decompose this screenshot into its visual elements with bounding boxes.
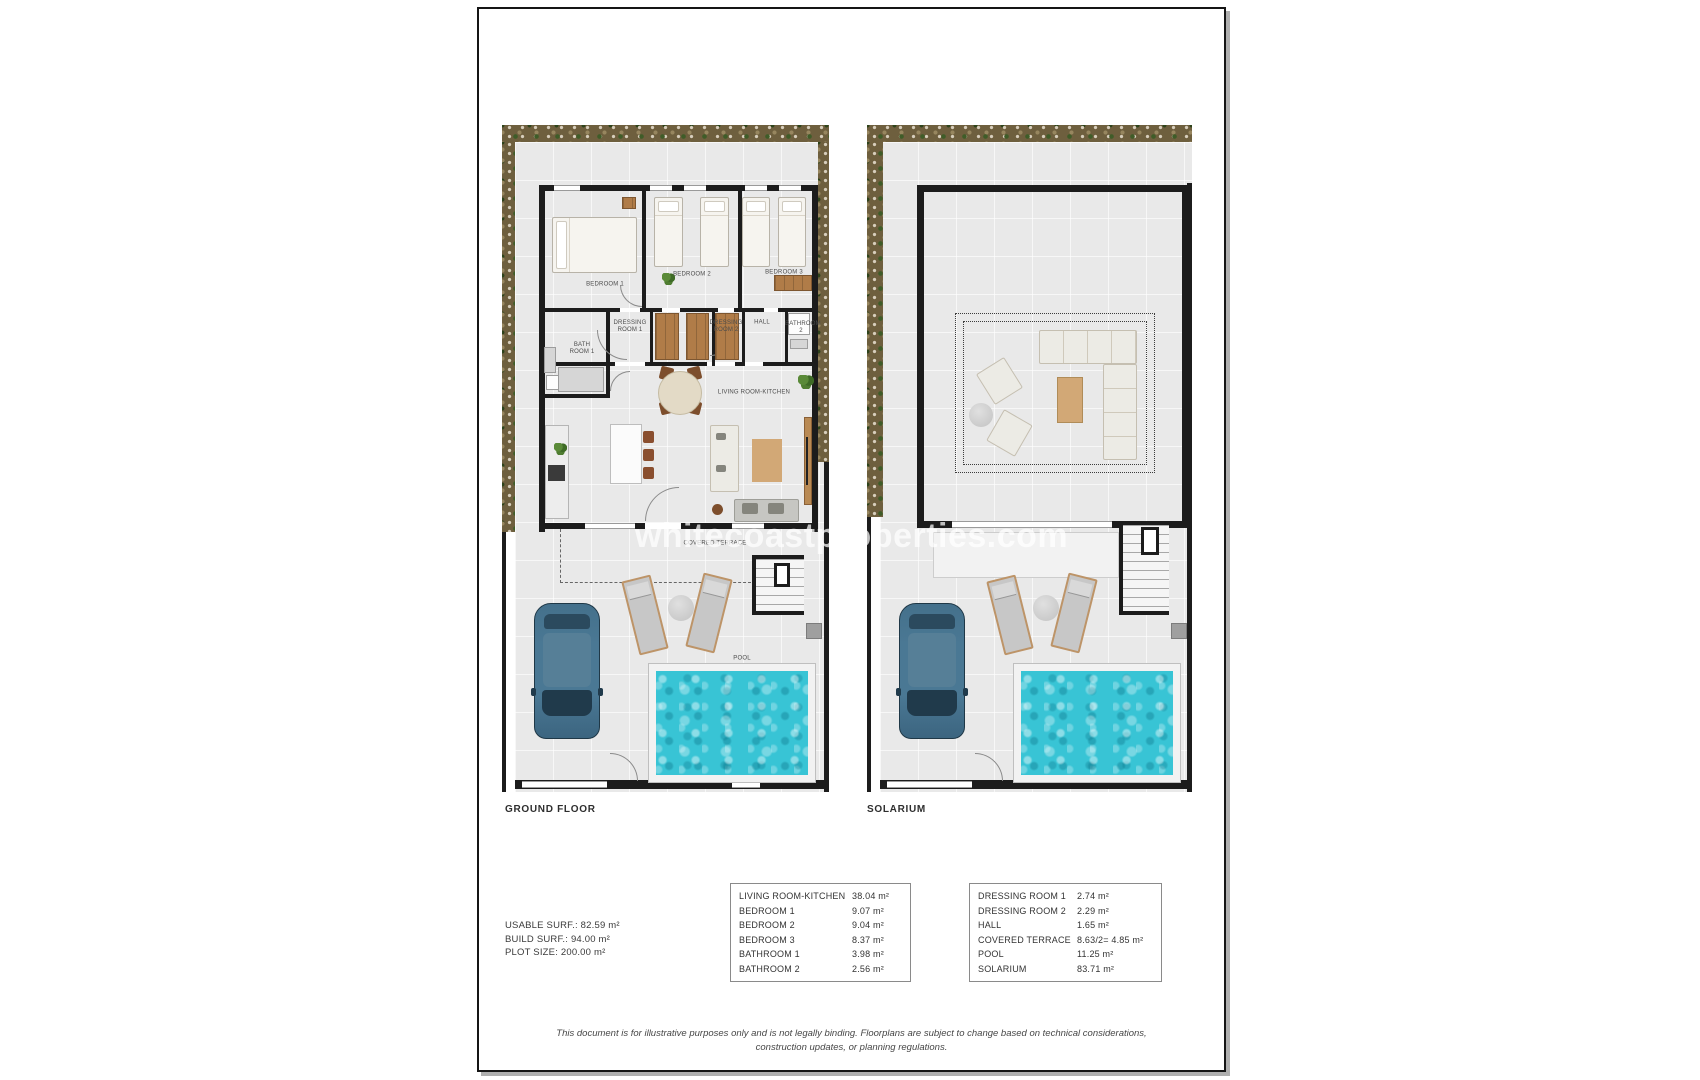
table-row: BEDROOM 38.37 m² <box>739 933 902 947</box>
bar-stool <box>643 431 654 443</box>
car-rear-window <box>909 614 955 629</box>
table-row: HALL1.65 m² <box>978 918 1153 932</box>
table-row: BEDROOM 19.07 m² <box>739 904 902 918</box>
room-name: SOLARIUM <box>978 962 1077 976</box>
room-label-bedroom3: BEDROOM 3 <box>765 270 803 277</box>
shower <box>558 367 604 392</box>
gate <box>522 781 607 788</box>
room-area: 8.37 m² <box>852 933 902 947</box>
room-label-bedroom1: BEDROOM 1 <box>586 282 624 289</box>
garden-strip-left <box>867 142 883 517</box>
room-area: 2.29 m² <box>1077 904 1153 918</box>
boundary-wall <box>824 462 829 792</box>
build-surface: BUILD SURF.: 94.00 m² <box>505 933 620 947</box>
room-label-bath2: BATHROOM 2 <box>785 321 817 335</box>
interior-wall <box>539 394 610 398</box>
solarium-wall <box>1182 185 1189 528</box>
wardrobe <box>774 275 812 291</box>
usable-surface: USABLE SURF.: 82.59 m² <box>505 919 620 933</box>
pool-water <box>1021 671 1173 775</box>
pool-water <box>656 671 808 775</box>
sink <box>790 339 808 349</box>
kitchen-island <box>610 424 642 484</box>
side-table <box>969 403 993 427</box>
utility-box <box>806 623 822 639</box>
plant-icon <box>554 443 567 455</box>
garden-strip-top <box>867 125 1192 142</box>
stair-wall <box>752 611 804 615</box>
disclaimer: This document is for illustrative purpos… <box>479 1027 1224 1055</box>
room-label-living: LIVING ROOM-KITCHEN <box>718 390 790 397</box>
l-sofa-vertical <box>1103 364 1137 460</box>
bar-stool <box>643 449 654 461</box>
pool <box>648 663 816 783</box>
room-label-dress2: DRESSING ROOM 2 <box>708 320 744 334</box>
car-mirror <box>896 688 901 696</box>
room-name: BEDROOM 2 <box>739 918 852 932</box>
patio-table <box>668 595 694 621</box>
house-wall <box>812 185 818 532</box>
page: { "watermark": "whitecoastproperties.com… <box>0 0 1700 1080</box>
stove <box>548 465 565 481</box>
room-area: 3.98 m² <box>852 947 902 961</box>
door-opening <box>764 308 778 312</box>
room-name: BATHROOM 1 <box>739 947 852 961</box>
room-name: POOL <box>978 947 1077 961</box>
areas-table-2: DRESSING ROOM 12.74 m² DRESSING ROOM 22.… <box>969 883 1162 982</box>
table-row: DRESSING ROOM 12.74 m² <box>978 889 1153 903</box>
ground-floor-title: GROUND FLOOR <box>505 804 596 815</box>
watermark: whitecoastproperties.com <box>635 517 1068 556</box>
car-windshield <box>907 690 957 716</box>
surface-summary: USABLE SURF.: 82.59 m² BUILD SURF.: 94.0… <box>505 919 620 960</box>
single-bed <box>742 197 770 267</box>
room-label-hall: HALL <box>754 320 770 327</box>
window <box>554 185 580 191</box>
disclaimer-line1: This document is for illustrative purpos… <box>479 1027 1224 1041</box>
cushion <box>716 433 726 440</box>
car-mirror <box>531 688 536 696</box>
room-name: HALL <box>978 918 1077 932</box>
l-sofa-horizontal <box>1039 330 1137 364</box>
room-label-dress1: DRESSING ROOM 1 <box>612 320 648 334</box>
car-rear-window <box>544 614 590 629</box>
table-row: LIVING ROOM-KITCHEN38.04 m² <box>739 889 902 903</box>
patio-table <box>1033 595 1059 621</box>
interior-wall <box>539 362 818 366</box>
table-row: POOL11.25 m² <box>978 947 1153 961</box>
rug <box>752 439 782 482</box>
tv <box>806 437 808 485</box>
room-area: 2.74 m² <box>1077 889 1153 903</box>
boundary-wall <box>502 532 506 792</box>
bedside-table <box>622 197 636 209</box>
coffee-table <box>1057 377 1083 423</box>
window <box>779 185 801 191</box>
room-name: BEDROOM 1 <box>739 904 852 918</box>
garden-strip-left <box>502 142 515 532</box>
pool <box>1013 663 1181 783</box>
room-name: COVERED TERRACE <box>978 933 1077 947</box>
car-roof <box>543 633 591 687</box>
window <box>684 185 706 191</box>
bar-stool <box>643 467 654 479</box>
door-opening <box>718 308 734 312</box>
utility-box <box>1171 623 1187 639</box>
interior-wall <box>650 308 653 366</box>
solarium-wall <box>917 185 924 528</box>
boundary-wall <box>867 517 871 792</box>
room-area: 11.25 m² <box>1077 947 1153 961</box>
garden-strip-right <box>818 142 829 462</box>
house-wall <box>539 185 818 191</box>
room-name: LIVING ROOM-KITCHEN <box>739 889 852 903</box>
table-row: SOLARIUM83.71 m² <box>978 962 1153 976</box>
single-bed <box>778 197 806 267</box>
door-opening <box>745 362 763 366</box>
dressing-closet <box>655 313 679 360</box>
room-area: 38.04 m² <box>852 889 902 903</box>
dining-table <box>658 371 702 415</box>
room-area: 9.07 m² <box>852 904 902 918</box>
room-name: BEDROOM 3 <box>739 933 852 947</box>
room-area: 9.04 m² <box>852 918 902 932</box>
room-area: 8.63/2= 4.85 m² <box>1077 933 1153 947</box>
stair-wall <box>1119 611 1169 615</box>
room-name: BATHROOM 2 <box>739 962 852 976</box>
window <box>745 185 767 191</box>
window <box>650 185 672 191</box>
floorplan-sheet: BEDROOM 1 BEDROOM 2 BEDROOM 3 BATH ROOM … <box>477 7 1226 1072</box>
side-table <box>712 504 723 515</box>
solarium-title: SOLARIUM <box>867 804 926 815</box>
table-row: COVERED TERRACE8.63/2= 4.85 m² <box>978 933 1153 947</box>
single-bed <box>700 197 729 267</box>
room-label-pool: POOL <box>733 656 750 663</box>
table-row: DRESSING ROOM 22.29 m² <box>978 904 1153 918</box>
table-row: BATHROOM 22.56 m² <box>739 962 902 976</box>
room-name: DRESSING ROOM 2 <box>978 904 1077 918</box>
car-mirror <box>598 688 603 696</box>
solarium-wall <box>917 185 1189 192</box>
cushion <box>742 503 758 514</box>
gate <box>887 781 972 788</box>
stair-wall <box>1119 521 1123 615</box>
cushion <box>716 465 726 472</box>
disclaimer-line2: construction updates, or planning regula… <box>479 1041 1224 1055</box>
areas-table-1: LIVING ROOM-KITCHEN38.04 m² BEDROOM 19.0… <box>730 883 911 982</box>
double-bed <box>552 217 637 273</box>
car <box>534 603 600 739</box>
room-label-bath1: BATH ROOM 1 <box>568 342 596 356</box>
car-mirror <box>963 688 968 696</box>
ground-floor-plan: BEDROOM 1 BEDROOM 2 BEDROOM 3 BATH ROOM … <box>502 125 829 792</box>
door-opening <box>615 362 645 366</box>
solarium-plan <box>867 125 1194 792</box>
room-area: 83.71 m² <box>1077 962 1153 976</box>
table-row: BATHROOM 13.98 m² <box>739 947 902 961</box>
dressing-closet <box>686 313 709 360</box>
car-windshield <box>542 690 592 716</box>
stair-landing <box>1141 527 1159 555</box>
sink <box>544 347 556 373</box>
door-opening <box>662 308 680 312</box>
stair-wall <box>752 555 756 615</box>
cushion <box>768 503 784 514</box>
car-roof <box>908 633 956 687</box>
room-label-bedroom2: BEDROOM 2 <box>673 272 711 279</box>
plant-icon <box>798 375 814 389</box>
table-row: BEDROOM 29.04 m² <box>739 918 902 932</box>
stair-landing <box>774 563 790 587</box>
single-bed <box>654 197 683 267</box>
garden-strip-top <box>502 125 829 142</box>
room-area: 1.65 m² <box>1077 918 1153 932</box>
room-area: 2.56 m² <box>852 962 902 976</box>
car <box>899 603 965 739</box>
door-opening <box>620 308 640 312</box>
room-name: DRESSING ROOM 1 <box>978 889 1077 903</box>
plot-size: PLOT SIZE: 200.00 m² <box>505 946 620 960</box>
interior-wall <box>642 185 646 311</box>
interior-wall <box>742 308 745 366</box>
